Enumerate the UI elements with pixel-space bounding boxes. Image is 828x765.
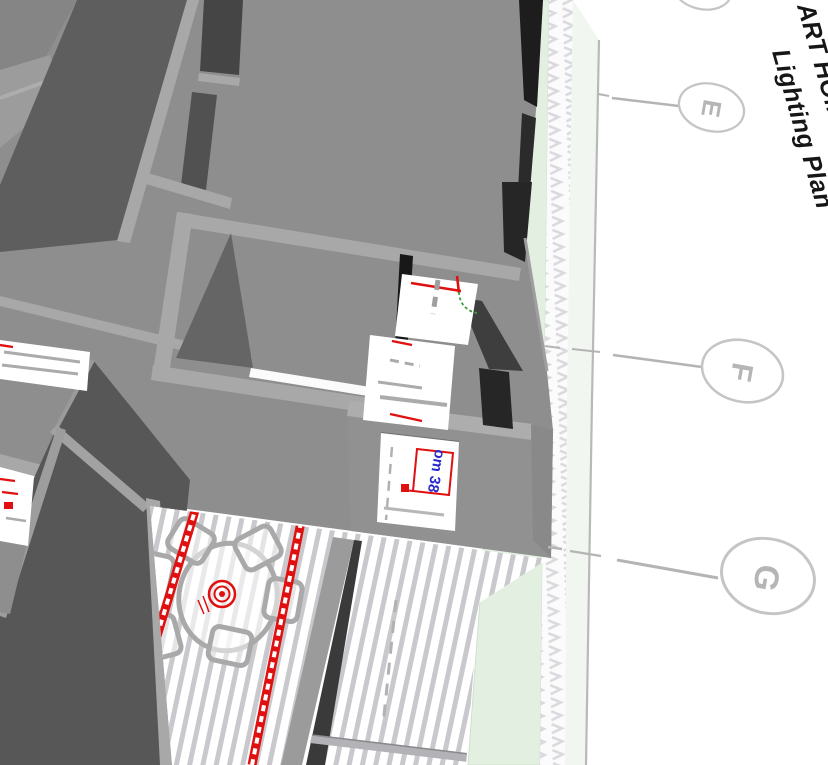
doorway-opening[interactable] bbox=[200, 0, 243, 75]
plan-red-symbol[interactable] bbox=[401, 484, 409, 492]
viewport-canvas[interactable]: om 38 bbox=[0, 0, 828, 765]
plan-patch-upper[interactable] bbox=[395, 274, 478, 345]
model-viewport[interactable]: om 38 bbox=[0, 0, 828, 765]
plan-red-symbol bbox=[4, 502, 13, 509]
plan-floor-patch bbox=[363, 335, 455, 430]
chair[interactable] bbox=[207, 625, 253, 667]
plan-sliver-left-2 bbox=[0, 470, 34, 546]
wall-corner-post[interactable] bbox=[531, 424, 553, 558]
wall-gap-dark bbox=[479, 368, 513, 429]
plan-patch-middle[interactable] bbox=[363, 335, 455, 430]
plan-patch-room38[interactable]: om 38 bbox=[377, 433, 459, 531]
